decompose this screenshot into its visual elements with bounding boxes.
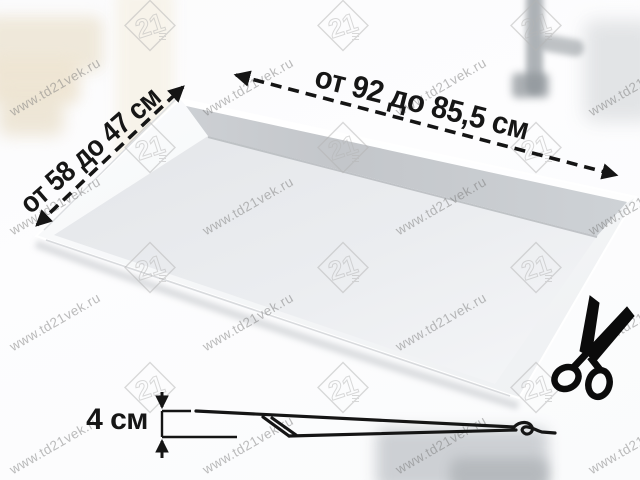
- side-profile-drawing: [196, 411, 555, 436]
- height-dimension-label: 4 см: [50, 403, 148, 437]
- product-image: www.td21vek.ruwww.td21vek.ruwww.td21vek.…: [0, 0, 640, 480]
- scissors-icon: [550, 296, 634, 399]
- height-dimension-lines: [162, 392, 237, 458]
